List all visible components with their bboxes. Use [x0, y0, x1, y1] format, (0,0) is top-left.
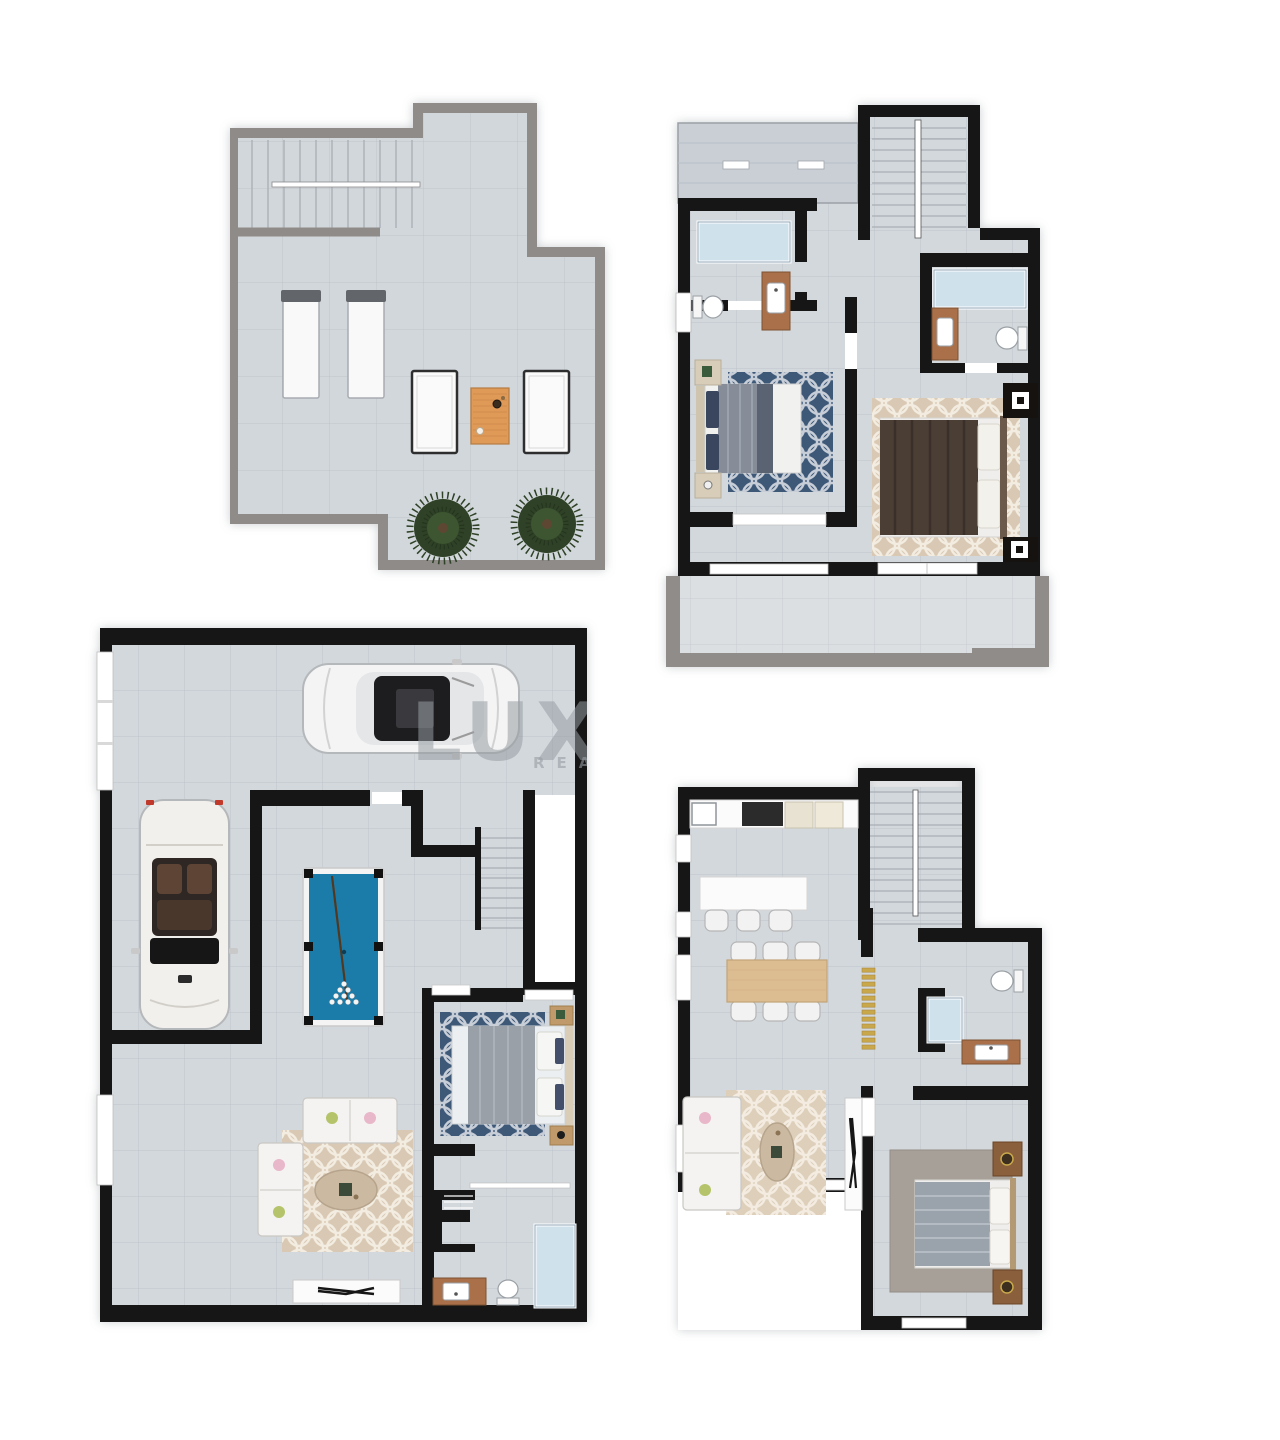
- bedroom-2: [872, 383, 1038, 562]
- shower: [698, 222, 790, 262]
- shower: [928, 998, 962, 1042]
- bedroom: [440, 1006, 573, 1145]
- floorplan-sheet: LUX REA: [0, 0, 1280, 1440]
- vanity-sink: [962, 1040, 1020, 1064]
- night-table: [1003, 537, 1038, 562]
- night-table: [550, 1006, 573, 1025]
- window: [710, 564, 828, 574]
- dining: [727, 942, 827, 1021]
- night-table: [1003, 383, 1038, 418]
- sofa: [683, 1097, 741, 1210]
- shower: [535, 1225, 575, 1307]
- garage-door: [97, 652, 113, 790]
- window: [676, 955, 691, 1000]
- night-table: [550, 1126, 573, 1145]
- cooktop: [742, 802, 783, 826]
- double-bed: [915, 1178, 1016, 1270]
- vanity-sink: [932, 308, 958, 360]
- toilet: [497, 1280, 519, 1305]
- tv-console: [293, 1280, 400, 1303]
- lounge-chair: [524, 371, 569, 453]
- sun-lounger: [346, 290, 386, 398]
- convertible-car: [131, 800, 238, 1029]
- wood-coffee-table: [471, 388, 509, 444]
- window: [97, 1095, 113, 1185]
- void-strip: [678, 123, 858, 203]
- window: [676, 293, 691, 332]
- island-counter: [700, 877, 807, 910]
- toilet: [996, 327, 1027, 350]
- bar-stools: [705, 910, 792, 931]
- toilet: [693, 296, 723, 318]
- oval-coffee-table: [315, 1170, 377, 1210]
- lightwell: [535, 795, 575, 982]
- sun-lounger: [281, 290, 321, 398]
- double-bed: [452, 1022, 573, 1128]
- appliance: [815, 802, 843, 828]
- window: [676, 835, 691, 862]
- roof-terrace-plan: [230, 100, 608, 580]
- sofa: [258, 1143, 303, 1236]
- window: [676, 912, 691, 937]
- kitchen-sink: [692, 803, 716, 825]
- night-table: [993, 1270, 1022, 1304]
- night-table: [993, 1142, 1022, 1176]
- lounge-chair: [412, 371, 457, 453]
- window: [902, 1318, 966, 1328]
- night-table: [695, 473, 721, 498]
- vanity-sink: [433, 1278, 486, 1305]
- sofa: [303, 1098, 397, 1143]
- window: [733, 514, 826, 525]
- sedan-car: [303, 659, 519, 759]
- dining-table: [727, 960, 827, 1002]
- double-bed: [880, 416, 1007, 539]
- terrace: [666, 576, 1049, 667]
- tv-console: [845, 1098, 862, 1210]
- shower: [934, 270, 1026, 308]
- appliance: [785, 802, 813, 828]
- basement-garage-plan: [93, 620, 593, 1326]
- double-bed: [696, 384, 801, 473]
- oval-coffee-table: [760, 1123, 794, 1181]
- toilet: [991, 970, 1023, 992]
- ground-floor-plan: [663, 755, 1055, 1335]
- bedroom: [890, 1142, 1022, 1304]
- billiard-table: [303, 868, 384, 1026]
- night-table: [695, 360, 721, 385]
- vanity-sink: [762, 272, 790, 330]
- bedroom-1: [695, 360, 833, 498]
- bedroom-floor-plan: [660, 90, 1055, 675]
